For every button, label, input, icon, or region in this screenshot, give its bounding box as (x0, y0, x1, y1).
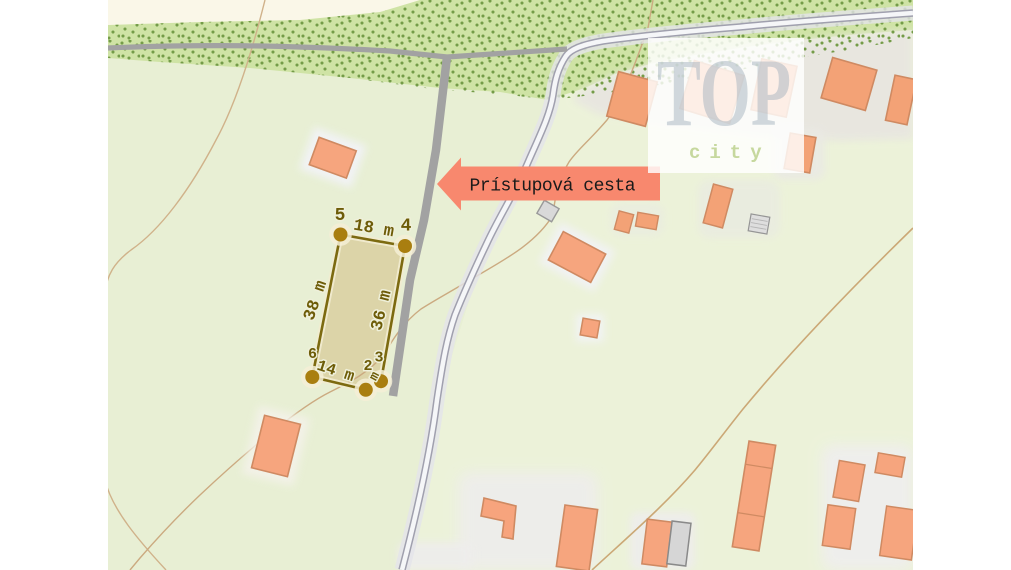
svg-text:6: 6 (308, 346, 317, 363)
svg-text:city: city (689, 142, 771, 164)
svg-text:Prístupová cesta: Prístupová cesta (470, 177, 636, 197)
svg-text:5: 5 (335, 206, 346, 226)
svg-text:TOP: TOP (657, 39, 791, 146)
svg-text:4: 4 (401, 217, 412, 237)
svg-text:3: 3 (374, 350, 383, 367)
